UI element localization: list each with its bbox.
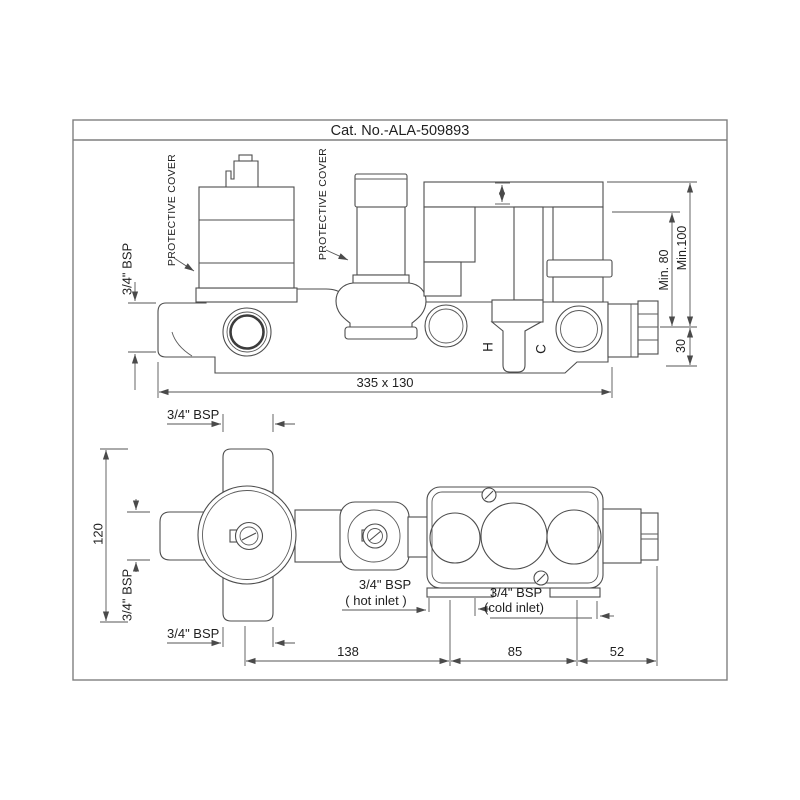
tower1-spindle	[226, 161, 258, 187]
bottom-view-bsp-left-dim: 3/4" BSP	[120, 499, 151, 621]
temperature-knob	[198, 486, 296, 584]
cold-inlet-tab	[550, 588, 600, 597]
diverter-to-cover-pipe	[408, 517, 428, 557]
top-view-bsp-label: 3/4" BSP	[120, 243, 135, 295]
protective-cover-label-2: PROTECTIVE COVER	[317, 148, 329, 260]
lower-right-block	[553, 277, 603, 302]
tower2-ring-band	[353, 275, 409, 283]
tower1-cover-body	[199, 187, 294, 288]
cold-port-marking: C	[534, 344, 549, 354]
dim30-text: 30	[674, 339, 688, 353]
top-view-bsp-dimension: 3/4" BSP	[120, 243, 157, 390]
leader-line-2	[326, 250, 348, 260]
cold-inlet-bsp-text: 3/4" BSP	[490, 585, 542, 600]
dim138-text: 138	[337, 644, 359, 659]
inlet-cover-body	[427, 487, 603, 597]
cold-inlet-caption-text: (cold inlet)	[484, 600, 544, 615]
diverter-body	[340, 502, 409, 570]
tower1-collar	[196, 288, 297, 302]
protective-cover-callout-2: PROTECTIVE COVER	[317, 148, 348, 260]
upper-left-block	[424, 207, 475, 262]
outlet-assembly	[603, 509, 658, 563]
bottom-view-bsp-top-dim: 3/4" BSP	[167, 407, 295, 432]
cartridge-tower-1	[196, 155, 297, 302]
bottom-view-bsp-bottom-dim: 3/4" BSP	[167, 626, 295, 647]
bsp-top-label: 3/4" BSP	[167, 407, 219, 422]
bsp-bottom-label: 3/4" BSP	[167, 626, 219, 641]
tower2-bell-skirt	[336, 283, 426, 327]
top-plate	[424, 182, 603, 207]
cartridge-tower-2	[336, 174, 426, 339]
upper-right-block	[553, 207, 603, 260]
tower2-foot	[345, 327, 417, 339]
bsp-left-label: 3/4" BSP	[120, 569, 135, 621]
dim85-text: 85	[508, 644, 522, 659]
right-flange-band	[547, 260, 612, 277]
overall-dim-text: 335 x 130	[356, 375, 413, 390]
hot-port-marking: H	[481, 342, 496, 352]
outlet-hex-nut	[638, 301, 658, 354]
outlet-pipe	[603, 509, 641, 563]
sheet-title: Cat. No.-ALA-509893	[331, 123, 470, 139]
h-dim-text: 120	[91, 523, 106, 545]
center-pillar	[514, 207, 543, 300]
protective-cover-label-1: PROTECTIVE COVER	[166, 154, 178, 266]
outlet-connector	[608, 304, 638, 357]
hot-inlet-bsp-text: 3/4" BSP	[359, 577, 411, 592]
top-view: H C	[120, 148, 698, 398]
right-connect-pipe	[295, 510, 341, 562]
pin-guide-block	[492, 300, 543, 322]
min80-dim-text: Min. 80	[657, 249, 671, 290]
hot-inlet-caption-text: ( hot inlet )	[345, 593, 406, 608]
drawing-sheet: Cat. No.-ALA-509893 H C	[0, 0, 800, 800]
protective-cover-callout-1: PROTECTIVE COVER	[166, 154, 194, 271]
min100-dim-text: Min.100	[675, 226, 689, 271]
tower2-cover-body	[357, 207, 405, 275]
dim52-text: 52	[610, 644, 624, 659]
outlet-end-cap	[641, 513, 658, 560]
hot-inlet-tab	[427, 588, 493, 597]
lower-left-block	[424, 262, 461, 296]
bottom-view: 3/4" BSP 120 3/4" BSP 3/4" BSP	[91, 407, 659, 666]
technical-drawing: Cat. No.-ALA-509893 H C	[0, 0, 800, 800]
hot-inlet-callout: 3/4" BSP ( hot inlet )	[342, 577, 429, 612]
tower1-spindle-tab	[239, 155, 252, 161]
cover-outline	[427, 487, 603, 588]
